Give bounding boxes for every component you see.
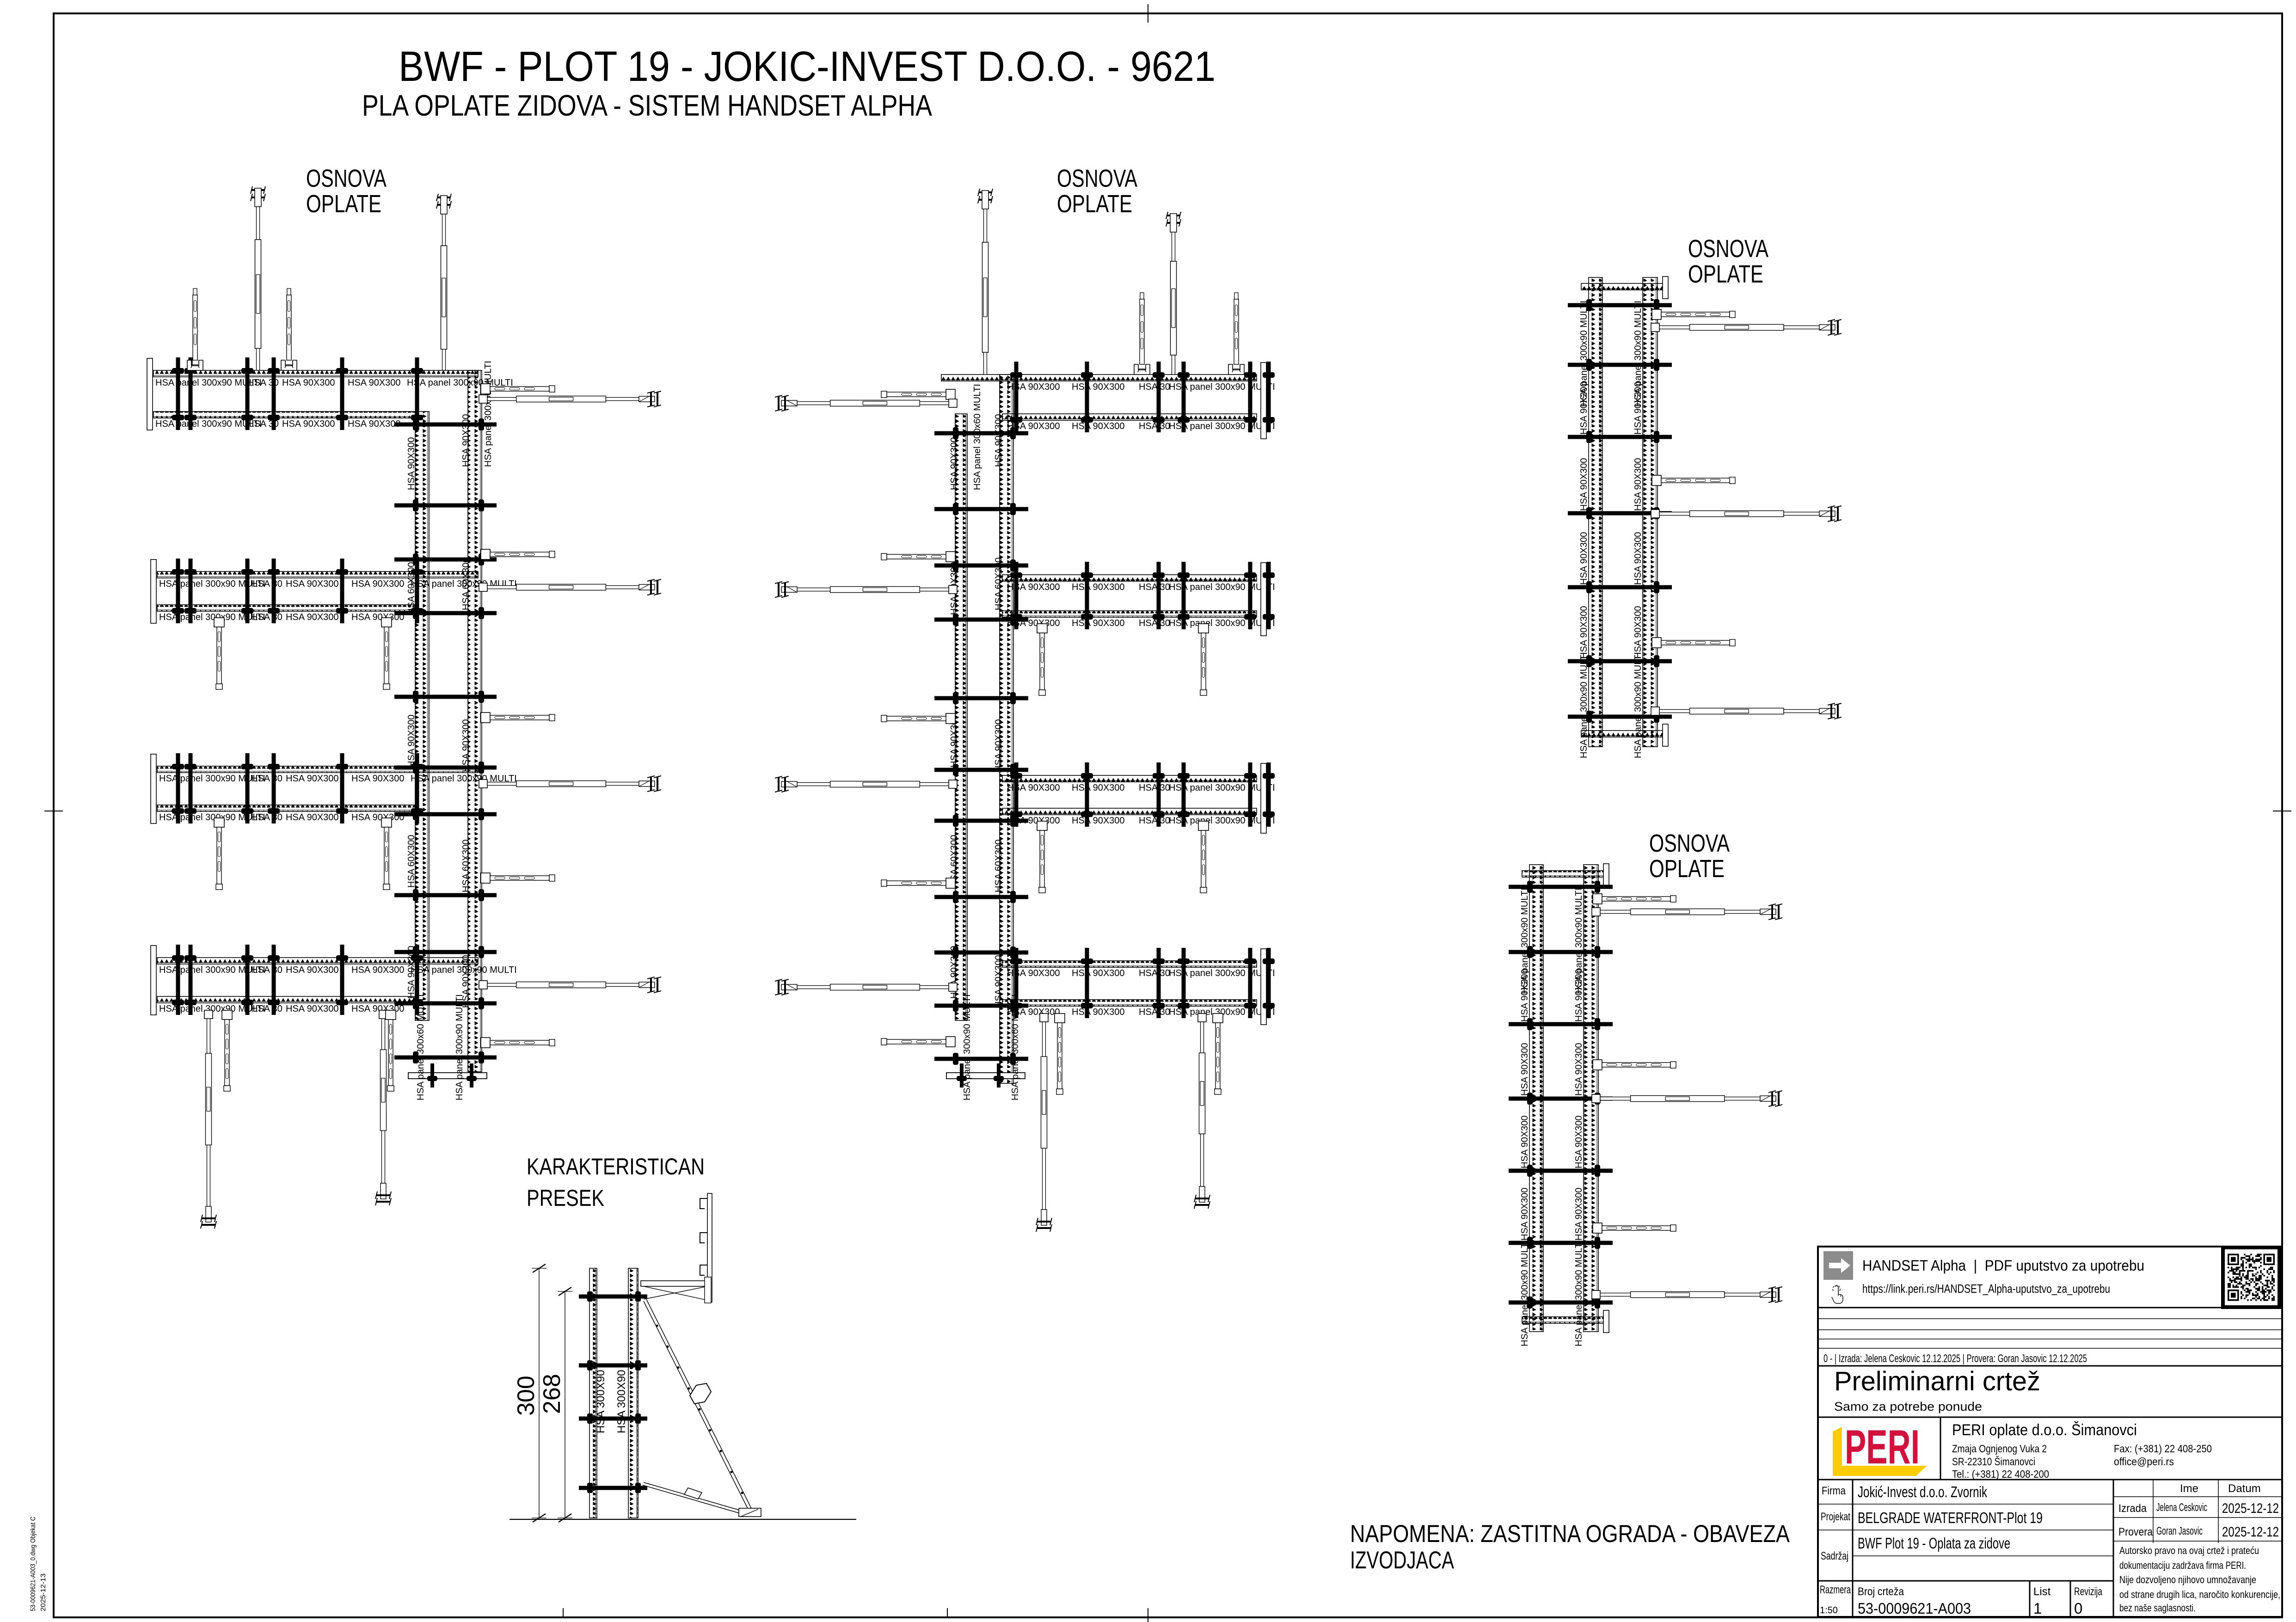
svg-text:HSA 90X300: HSA 90X300 xyxy=(406,714,417,768)
svg-text:HSA 60X300: HSA 60X300 xyxy=(406,562,417,615)
svg-text:Datum: Datum xyxy=(2228,1482,2261,1495)
svg-text:https://link.peri.rs/HANDSET_A: https://link.peri.rs/HANDSET_Alpha-uputs… xyxy=(1862,1282,2110,1296)
svg-text:Broj crteža: Broj crteža xyxy=(1858,1585,1904,1598)
svg-text:2025-12-12: 2025-12-12 xyxy=(2222,1524,2279,1540)
svg-text:Tel.: (+381) 22 408-200: Tel.: (+381) 22 408-200 xyxy=(1952,1468,2049,1480)
svg-text:IZVODJACA: IZVODJACA xyxy=(1350,1547,1454,1574)
svg-text:HSA 90X300: HSA 90X300 xyxy=(1520,1043,1530,1096)
svg-text:HSA 90X300: HSA 90X300 xyxy=(282,378,335,388)
svg-text:HSA 90X300: HSA 90X300 xyxy=(1579,532,1589,585)
svg-text:Goran Jasovic: Goran Jasovic xyxy=(2156,1525,2203,1537)
svg-text:HSA 30: HSA 30 xyxy=(251,612,282,622)
svg-text:HSA 60X300: HSA 60X300 xyxy=(461,839,471,892)
svg-text:Jelena Ceskovic: Jelena Ceskovic xyxy=(2156,1501,2207,1514)
svg-text:HSA 30: HSA 30 xyxy=(251,579,282,589)
svg-text:1: 1 xyxy=(2033,1600,2042,1617)
svg-text:HSA 30: HSA 30 xyxy=(1139,968,1170,978)
svg-text:BWF - PLOT 19 - JOKIC-INVEST D: BWF - PLOT 19 - JOKIC-INVEST D.O.O. - 96… xyxy=(399,43,1216,90)
svg-text:PLA OPLATE ZIDOVA - SISTEM HAN: PLA OPLATE ZIDOVA - SISTEM HANDSET ALPHA xyxy=(362,89,932,122)
svg-text:HSA 90X300: HSA 90X300 xyxy=(1579,381,1589,435)
svg-text:HSA 90X300: HSA 90X300 xyxy=(406,946,417,999)
svg-text:HSA 90X300: HSA 90X300 xyxy=(348,378,401,388)
svg-text:Provera: Provera xyxy=(2118,1526,2153,1538)
svg-text:HSA 30: HSA 30 xyxy=(1139,618,1170,628)
svg-text:Samo za potrebe ponude: Samo za potrebe ponude xyxy=(1834,1400,1982,1413)
svg-text:HSA 90X300: HSA 90X300 xyxy=(1520,1115,1530,1168)
svg-text:HSA 60X300: HSA 60X300 xyxy=(994,557,1004,610)
svg-text:HSA panel 300x60 MULTI: HSA panel 300x60 MULTI xyxy=(972,384,982,490)
svg-text:office@peri.rs: office@peri.rs xyxy=(2114,1456,2174,1468)
svg-text:HSA 30: HSA 30 xyxy=(1139,582,1170,592)
svg-text:268: 268 xyxy=(539,1374,565,1414)
svg-text:HSA 90X300: HSA 90X300 xyxy=(1633,532,1643,585)
svg-text:HSA 90X300: HSA 90X300 xyxy=(286,812,339,823)
svg-text:HSA 90X300: HSA 90X300 xyxy=(461,414,471,467)
svg-text:Autorsko pravo na ovaj crtež i: Autorsko pravo na ovaj crtež i prateću xyxy=(2119,1545,2259,1556)
svg-text:HSA 90X300: HSA 90X300 xyxy=(1072,618,1125,628)
svg-text:HSA 90X300: HSA 90X300 xyxy=(1072,968,1125,978)
svg-text:HSA 30: HSA 30 xyxy=(251,812,282,823)
svg-text:OSNOVA: OSNOVA xyxy=(1057,165,1137,192)
svg-text:53-0009621-A003: 53-0009621-A003 xyxy=(1858,1600,1971,1617)
svg-text:OPLATE: OPLATE xyxy=(1649,855,1725,883)
svg-text:KARAKTERISTICAN: KARAKTERISTICAN xyxy=(527,1154,705,1180)
svg-text:HSA panel 300x90 MULTI: HSA panel 300x90 MULTI xyxy=(1633,652,1643,758)
svg-text:HSA 90X300: HSA 90X300 xyxy=(1574,1187,1584,1241)
svg-text:HSA 30: HSA 30 xyxy=(1139,382,1170,392)
svg-text:HSA 90X300: HSA 90X300 xyxy=(1072,382,1125,392)
svg-text:2025-12-12: 2025-12-12 xyxy=(2222,1501,2279,1516)
svg-text:HANDSET Alpha | PDF uputstvo: HANDSET Alpha | PDF uputstvo za upotrebu xyxy=(1862,1257,2144,1274)
svg-text:HSA 90X300: HSA 90X300 xyxy=(351,774,405,784)
svg-text:Revizija: Revizija xyxy=(2074,1585,2102,1598)
svg-text:HSA 90X300: HSA 90X300 xyxy=(1072,783,1125,793)
svg-text:bez naše saglasnosti.: bez naše saglasnosti. xyxy=(2119,1602,2196,1614)
svg-text:HSA panel 300x90 MULTI: HSA panel 300x90 MULTI xyxy=(1520,1240,1530,1346)
svg-text:HSA panel 300x60 MULTI: HSA panel 300x60 MULTI xyxy=(416,994,426,1100)
svg-text:Projekat: Projekat xyxy=(1821,1511,1850,1523)
svg-text:HSA 300X90: HSA 300X90 xyxy=(595,1370,607,1433)
svg-text:BWF Plot 19 - Oplata za zidove: BWF Plot 19 - Oplata za zidove xyxy=(1858,1535,2010,1552)
svg-text:HSA 90X300: HSA 90X300 xyxy=(994,719,1004,772)
svg-text:HSA 30: HSA 30 xyxy=(1139,816,1170,826)
svg-text:HSA panel 300x60 MULTI: HSA panel 300x60 MULTI xyxy=(483,361,493,467)
svg-text:HSA 90X300: HSA 90X300 xyxy=(286,774,339,784)
svg-text:HSA 90X300: HSA 90X300 xyxy=(1633,458,1643,511)
svg-text:HSA 90X300: HSA 90X300 xyxy=(1520,1187,1530,1241)
svg-text:HSA 90X300: HSA 90X300 xyxy=(286,579,339,589)
svg-text:OPLATE: OPLATE xyxy=(1057,190,1132,218)
svg-text:HSA 90X300: HSA 90X300 xyxy=(1633,381,1643,435)
svg-text:HSA 30: HSA 30 xyxy=(251,965,282,975)
svg-text:Izrada: Izrada xyxy=(2118,1502,2147,1515)
svg-text:Fax: (+381) 22 408-250: Fax: (+381) 22 408-250 xyxy=(2114,1443,2212,1455)
svg-text:HSA 90X300: HSA 90X300 xyxy=(1072,816,1125,826)
svg-text:HSA 90X300: HSA 90X300 xyxy=(949,437,959,490)
svg-text:HSA 90X300: HSA 90X300 xyxy=(461,719,471,772)
svg-text:HSA 90X300: HSA 90X300 xyxy=(1574,1115,1584,1168)
svg-text:53-0009621-A003_0.dwg Objekat: 53-0009621-A003_0.dwg Objekat C xyxy=(29,1517,37,1611)
svg-text:Razmera: Razmera xyxy=(1820,1584,1851,1596)
svg-text:od strane drugih lica, naročit: od strane drugih lica, naročito konkuren… xyxy=(2119,1589,2280,1600)
svg-text:HSA 90X300: HSA 90X300 xyxy=(1574,1043,1584,1096)
svg-text:HSA 90X300: HSA 90X300 xyxy=(1579,458,1589,511)
svg-text:Sadržaj: Sadržaj xyxy=(1821,1550,1848,1562)
svg-text:HSA 30: HSA 30 xyxy=(251,774,282,784)
svg-text:HSA 90X300: HSA 90X300 xyxy=(994,955,1004,1008)
svg-text:SR-22310 Šimanovci: SR-22310 Šimanovci xyxy=(1952,1455,2035,1468)
svg-text:HSA 30: HSA 30 xyxy=(1139,1007,1170,1017)
svg-text:HSA 90X300: HSA 90X300 xyxy=(1072,582,1125,592)
svg-text:Zmaja Ognjenog Vuka 2: Zmaja Ognjenog Vuka 2 xyxy=(1952,1443,2047,1455)
svg-text:OPLATE: OPLATE xyxy=(1688,260,1763,288)
svg-text:HSA 90X300: HSA 90X300 xyxy=(351,579,405,589)
svg-text:HSA 90X300: HSA 90X300 xyxy=(1633,606,1643,659)
svg-text:Ime: Ime xyxy=(2180,1482,2198,1495)
svg-text:HSA 90X300: HSA 90X300 xyxy=(282,419,335,429)
svg-text:HSA 90X300: HSA 90X300 xyxy=(286,612,339,622)
svg-text:HSA panel 300x60 MULTI: HSA panel 300x60 MULTI xyxy=(1010,994,1020,1100)
svg-text:2025-12-13: 2025-12-13 xyxy=(39,1573,47,1611)
svg-text:Jokić-Invest d.o.o. Zvornik: Jokić-Invest d.o.o. Zvornik xyxy=(1858,1483,1987,1500)
svg-text:PRESEK: PRESEK xyxy=(527,1185,604,1211)
svg-text:PERI: PERI xyxy=(1845,1420,1920,1474)
svg-text:dokumentaciju zadržava firma P: dokumentaciju zadržava firma PERI. xyxy=(2119,1560,2246,1571)
svg-text:HSA 90X300: HSA 90X300 xyxy=(1574,969,1584,1022)
svg-text:HSA 90X300: HSA 90X300 xyxy=(286,1004,339,1014)
svg-text:HSA 300X90: HSA 300X90 xyxy=(615,1370,628,1433)
svg-text:Preliminarni crtež: Preliminarni crtež xyxy=(1834,1366,2040,1396)
svg-text:HSA 90X300: HSA 90X300 xyxy=(994,414,1004,467)
svg-text:HSA 90X300: HSA 90X300 xyxy=(1520,969,1530,1022)
svg-text:HSA 60X300: HSA 60X300 xyxy=(994,839,1004,892)
svg-text:PERI oplate d.o.o. Šimanovci: PERI oplate d.o.o. Šimanovci xyxy=(1952,1421,2137,1439)
svg-text:HSA 30: HSA 30 xyxy=(1139,421,1170,431)
svg-text:HSA panel 300x90 MULTI: HSA panel 300x90 MULTI xyxy=(454,994,465,1100)
svg-text:NAPOMENA: ZASTITNA OGRADA - OB: NAPOMENA: ZASTITNA OGRADA - OBAVEZA xyxy=(1350,1520,1790,1548)
svg-text:0: 0 xyxy=(2074,1600,2082,1617)
svg-text:0 - | Izrada: Jelena Ceskovic: 0 - | Izrada: Jelena Ceskovic 12.12.2025… xyxy=(1823,1352,2087,1365)
svg-text:HSA 60X300: HSA 60X300 xyxy=(461,557,471,610)
svg-text:HSA 90X300: HSA 90X300 xyxy=(351,965,405,975)
svg-text:HSA 90X300: HSA 90X300 xyxy=(1579,606,1589,659)
svg-text:HSA panel 300x90 MULTI: HSA panel 300x90 MULTI xyxy=(962,994,972,1100)
svg-text:HSA 90X300: HSA 90X300 xyxy=(348,419,401,429)
svg-text:Nije dozvoljeno njihovo umnoža: Nije dozvoljeno njihovo umnožavanje xyxy=(2119,1574,2256,1585)
svg-text:300: 300 xyxy=(513,1376,540,1416)
svg-text:Firma: Firma xyxy=(1822,1485,1846,1497)
svg-text:HSA 90X300: HSA 90X300 xyxy=(286,965,339,975)
svg-text:OSNOVA: OSNOVA xyxy=(1649,829,1730,857)
svg-text:OPLATE: OPLATE xyxy=(306,190,381,218)
svg-text:OSNOVA: OSNOVA xyxy=(1688,235,1768,263)
svg-text:OSNOVA: OSNOVA xyxy=(306,165,387,192)
svg-text:HSA 90X300: HSA 90X300 xyxy=(406,437,417,490)
svg-text:HSA 30: HSA 30 xyxy=(251,1004,282,1014)
svg-text:HSA 90X300: HSA 90X300 xyxy=(1072,421,1125,431)
svg-text:HSA panel 300x90 MULTI: HSA panel 300x90 MULTI xyxy=(1574,1240,1584,1346)
svg-text:HSA 90X300: HSA 90X300 xyxy=(1072,1007,1125,1017)
svg-text:1:50: 1:50 xyxy=(1820,1605,1838,1616)
svg-text:HSA 30: HSA 30 xyxy=(1139,783,1170,793)
svg-text:HSA panel 300x90 MULTI: HSA panel 300x90 MULTI xyxy=(1579,652,1589,758)
svg-text:HSA 60X300: HSA 60X300 xyxy=(406,835,417,888)
svg-text:BELGRADE WATERFRONT-Plot 19: BELGRADE WATERFRONT-Plot 19 xyxy=(1858,1509,2043,1526)
svg-text:List: List xyxy=(2033,1585,2051,1598)
